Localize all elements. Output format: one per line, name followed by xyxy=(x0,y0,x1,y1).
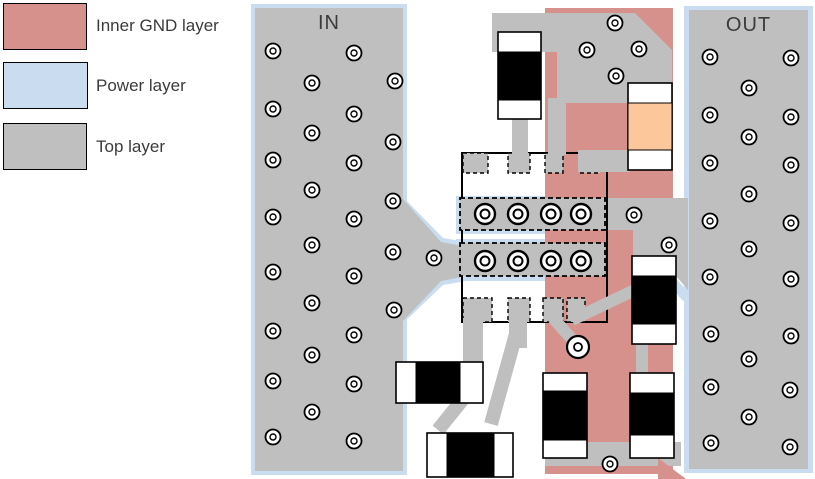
via-small-hole xyxy=(351,273,357,279)
via-small-hole xyxy=(708,331,714,337)
trace-pour-drop xyxy=(548,98,566,155)
out-top-plane xyxy=(689,10,808,469)
via-small-hole xyxy=(708,384,714,390)
via-small-hole xyxy=(636,46,642,52)
via-small-hole xyxy=(708,440,714,446)
via-small-hole xyxy=(746,414,752,420)
via-small-hole xyxy=(746,134,752,140)
via-small-hole xyxy=(787,387,793,393)
via-small-hole xyxy=(788,55,794,61)
trace-cap1-drop xyxy=(512,115,528,155)
board-svg xyxy=(0,0,815,479)
trace-padb2-diagonal xyxy=(491,334,516,424)
ic-pad-top-2 xyxy=(508,153,530,173)
via-large-hole xyxy=(547,257,556,266)
via-small-hole xyxy=(392,78,398,84)
via-small-hole xyxy=(270,106,276,112)
ic-pad-top-1 xyxy=(463,153,488,173)
via-small-hole xyxy=(707,218,713,224)
via-large-hole xyxy=(514,257,523,266)
via-small-hole xyxy=(746,305,752,311)
via-small-hole xyxy=(309,409,315,415)
via-small-hole xyxy=(270,214,276,220)
via-small-hole xyxy=(788,333,794,339)
via-small-hole xyxy=(613,73,619,79)
via-small-hole xyxy=(707,160,713,166)
via-small-hole xyxy=(707,274,713,280)
via-large-hole xyxy=(577,210,586,219)
in-top-plane xyxy=(255,8,403,471)
via-small-hole xyxy=(746,191,752,197)
via-large-hole xyxy=(514,210,523,219)
via-small-hole xyxy=(788,114,794,120)
via-small-hole xyxy=(351,216,357,222)
via-small-hole xyxy=(390,139,396,145)
via-small-hole xyxy=(746,246,752,252)
via-small-hole xyxy=(612,20,618,26)
trace-pad4-to-tantalum xyxy=(578,150,630,172)
via-small-hole xyxy=(787,444,793,450)
via-small-hole xyxy=(631,212,637,218)
via-small-hole xyxy=(309,352,315,358)
via-small-hole xyxy=(390,249,396,255)
via-small-hole xyxy=(270,269,276,275)
via-large-hole xyxy=(481,210,490,219)
via-small-hole xyxy=(746,85,752,91)
trace-padb1-down xyxy=(463,318,483,364)
via-small-hole xyxy=(351,438,357,444)
capacitor-bottom-horizontal-body xyxy=(447,433,494,477)
via-small-hole xyxy=(788,276,794,282)
via-small-hole xyxy=(309,242,315,248)
via-small-hole xyxy=(270,48,276,54)
via-small-hole xyxy=(788,162,794,168)
pcb-layout-figure: Inner GND layer Power layer Top layer IN… xyxy=(0,0,815,479)
via-small-hole xyxy=(351,111,357,117)
via-large-hole xyxy=(547,210,556,219)
ic-pad-top-3 xyxy=(545,153,563,173)
via-small-hole xyxy=(351,160,357,166)
via-small-hole xyxy=(788,220,794,226)
via-small-hole xyxy=(431,255,437,261)
capacitor-tantalum-body xyxy=(628,103,672,150)
via-small-hole xyxy=(309,130,315,136)
via-medium-hole xyxy=(574,343,582,351)
via-small-hole xyxy=(391,307,397,313)
via-small-hole xyxy=(607,461,613,467)
via-small-hole xyxy=(584,47,590,53)
via-small-hole xyxy=(351,381,357,387)
capacitor-top-left-body xyxy=(498,52,541,100)
via-small-hole xyxy=(270,157,276,163)
trace-capE-to-capD xyxy=(636,340,648,375)
via-small-hole xyxy=(707,112,713,118)
capacitor-right-upper-body xyxy=(632,276,676,324)
via-small-hole xyxy=(351,332,357,338)
via-small-hole xyxy=(270,434,276,440)
via-small-hole xyxy=(309,80,315,86)
via-small-hole xyxy=(707,54,713,60)
via-large-hole xyxy=(577,257,586,266)
via-small-hole xyxy=(270,378,276,384)
via-small-hole xyxy=(390,198,396,204)
capacitor-center-bottom-body xyxy=(543,391,587,440)
capacitor-left-horizontal-body xyxy=(416,362,460,403)
via-large-hole xyxy=(481,257,490,266)
via-small-hole xyxy=(309,300,315,306)
via-small-hole xyxy=(746,356,752,362)
via-small-hole xyxy=(309,187,315,193)
via-small-hole xyxy=(351,50,357,56)
via-small-hole xyxy=(270,328,276,334)
capacitor-right-bottom-body xyxy=(630,393,674,435)
via-small-hole xyxy=(666,242,672,248)
